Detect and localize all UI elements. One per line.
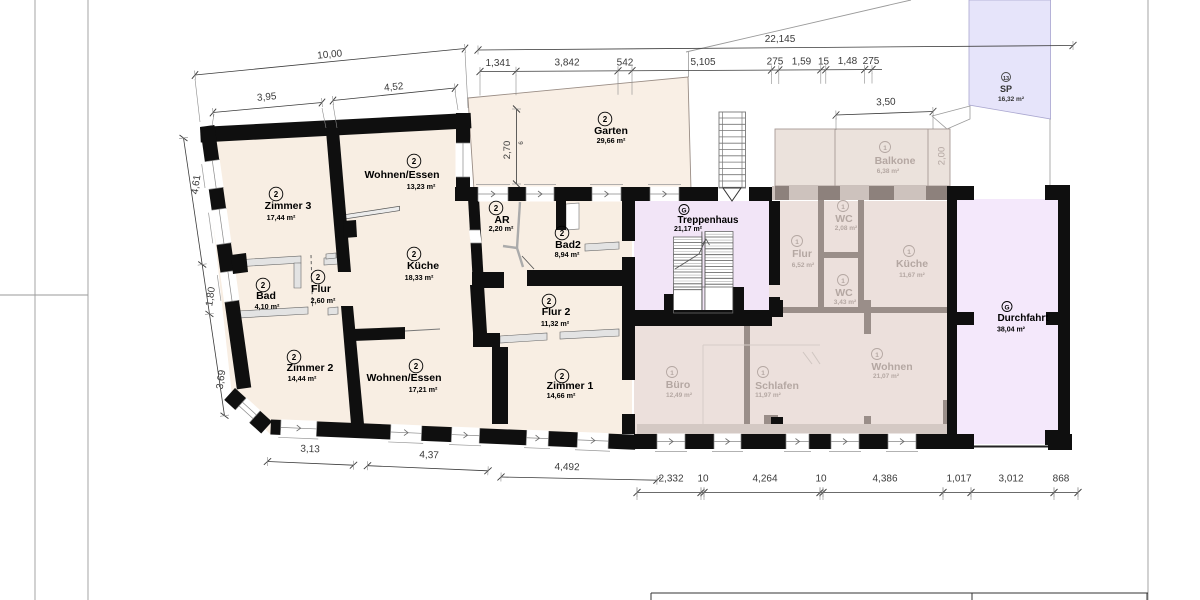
svg-text:2,08 m²: 2,08 m² [835,225,858,232]
svg-text:1: 1 [841,204,845,211]
svg-text:2: 2 [494,204,499,213]
svg-text:4,264: 4,264 [752,474,777,485]
svg-text:Wohnen/Essen: Wohnen/Essen [364,169,439,181]
svg-text:4,386: 4,386 [872,474,897,485]
svg-text:1,59: 1,59 [792,56,812,67]
svg-text:1: 1 [883,145,887,152]
svg-text:1,341: 1,341 [485,58,510,69]
svg-text:2: 2 [547,297,552,306]
svg-text:Balkone: Balkone [875,155,916,167]
svg-text:14,44 m²: 14,44 m² [288,374,317,383]
svg-text:29,66 m²: 29,66 m² [597,136,626,145]
svg-text:15: 15 [818,56,830,67]
svg-text:2: 2 [412,157,417,166]
svg-text:868: 868 [1053,474,1070,485]
svg-text:4,52: 4,52 [384,81,405,94]
svg-text:1,48: 1,48 [838,56,858,67]
svg-text:10: 10 [815,474,827,485]
svg-text:Bad: Bad [256,290,276,302]
svg-text:G: G [681,207,686,214]
svg-text:3,43 m²: 3,43 m² [834,299,857,306]
svg-text:Büro: Büro [666,379,691,391]
svg-text:1,017: 1,017 [946,474,971,485]
svg-text:6,52 m²: 6,52 m² [792,262,815,269]
svg-text:Küche: Küche [407,260,439,272]
svg-text:2,332: 2,332 [658,474,683,485]
svg-text:17,44 m²: 17,44 m² [267,213,296,222]
svg-text:2: 2 [414,362,419,371]
svg-text:11,32 m²: 11,32 m² [541,319,570,328]
svg-text:8,94 m²: 8,94 m² [555,250,580,259]
svg-text:1: 1 [761,370,765,377]
svg-text:1: 1 [670,370,674,377]
svg-text:2: 2 [274,190,279,199]
svg-text:Schlafen: Schlafen [755,380,799,392]
svg-text:Zimmer 2: Zimmer 2 [287,362,334,374]
svg-text:2: 2 [560,229,565,238]
svg-text:G: G [1004,304,1009,311]
svg-text:2,20 m²: 2,20 m² [489,224,514,233]
svg-text:1: 1 [907,249,911,256]
svg-text:13,23 m²: 13,23 m² [407,182,436,191]
svg-text:1: 1 [795,239,799,246]
svg-text:2: 2 [603,115,608,124]
svg-text:WC: WC [835,213,853,225]
svg-text:3,842: 3,842 [554,58,579,69]
svg-text:2: 2 [261,281,266,290]
svg-text:542: 542 [617,57,634,68]
svg-text:3,95: 3,95 [257,91,278,104]
svg-text:Küche: Küche [896,258,928,270]
svg-text:SP: SP [1000,84,1012,94]
svg-text:17,21 m²: 17,21 m² [409,385,438,394]
svg-text:11,67 m²: 11,67 m² [899,272,925,279]
svg-text:Flur: Flur [311,283,331,295]
svg-text:Flur: Flur [792,248,812,260]
svg-text:Durchfahrt: Durchfahrt [997,313,1049,324]
svg-text:Flur 2: Flur 2 [542,306,571,318]
svg-text:Zimmer 3: Zimmer 3 [265,200,312,212]
svg-text:16,32 m²: 16,32 m² [998,96,1025,103]
svg-text:12,49 m²: 12,49 m² [666,392,693,399]
svg-text:2,00: 2,00 [937,147,948,166]
svg-text:2,70: 2,70 [502,141,513,160]
svg-text:18,33 m²: 18,33 m² [405,273,434,282]
svg-text:2,60 m²: 2,60 m² [311,296,336,305]
svg-text:3,50: 3,50 [876,97,896,109]
svg-text:38,04 m²: 38,04 m² [997,327,1026,334]
svg-text:WC: WC [835,287,853,299]
svg-text:3,13: 3,13 [300,444,320,456]
svg-text:4,492: 4,492 [554,462,580,474]
svg-text:2: 2 [412,250,417,259]
svg-text:6,38 m²: 6,38 m² [877,168,900,175]
svg-text:21,17 m²: 21,17 m² [674,226,703,233]
svg-text:4,10 m²: 4,10 m² [255,302,280,311]
svg-text:22,145: 22,145 [765,34,796,45]
svg-text:10: 10 [697,474,709,485]
svg-text:14,66 m²: 14,66 m² [547,391,576,400]
svg-text:275: 275 [767,57,784,68]
svg-text:21,07 m²: 21,07 m² [873,373,900,380]
svg-text:11,97 m²: 11,97 m² [755,392,781,399]
svg-text:Wohnen/Essen: Wohnen/Essen [366,372,441,384]
svg-text:5,105: 5,105 [690,57,715,68]
svg-text:Wohnen: Wohnen [871,361,912,373]
svg-text:4,37: 4,37 [419,450,439,462]
svg-text:1: 1 [841,278,845,285]
svg-text:13: 13 [1003,76,1009,82]
svg-text:275: 275 [863,56,880,67]
svg-text:2: 2 [316,273,321,282]
svg-text:Treppenhaus: Treppenhaus [678,215,740,226]
svg-text:2: 2 [292,353,297,362]
svg-text:1: 1 [875,352,879,359]
svg-text:3,012: 3,012 [998,474,1023,485]
